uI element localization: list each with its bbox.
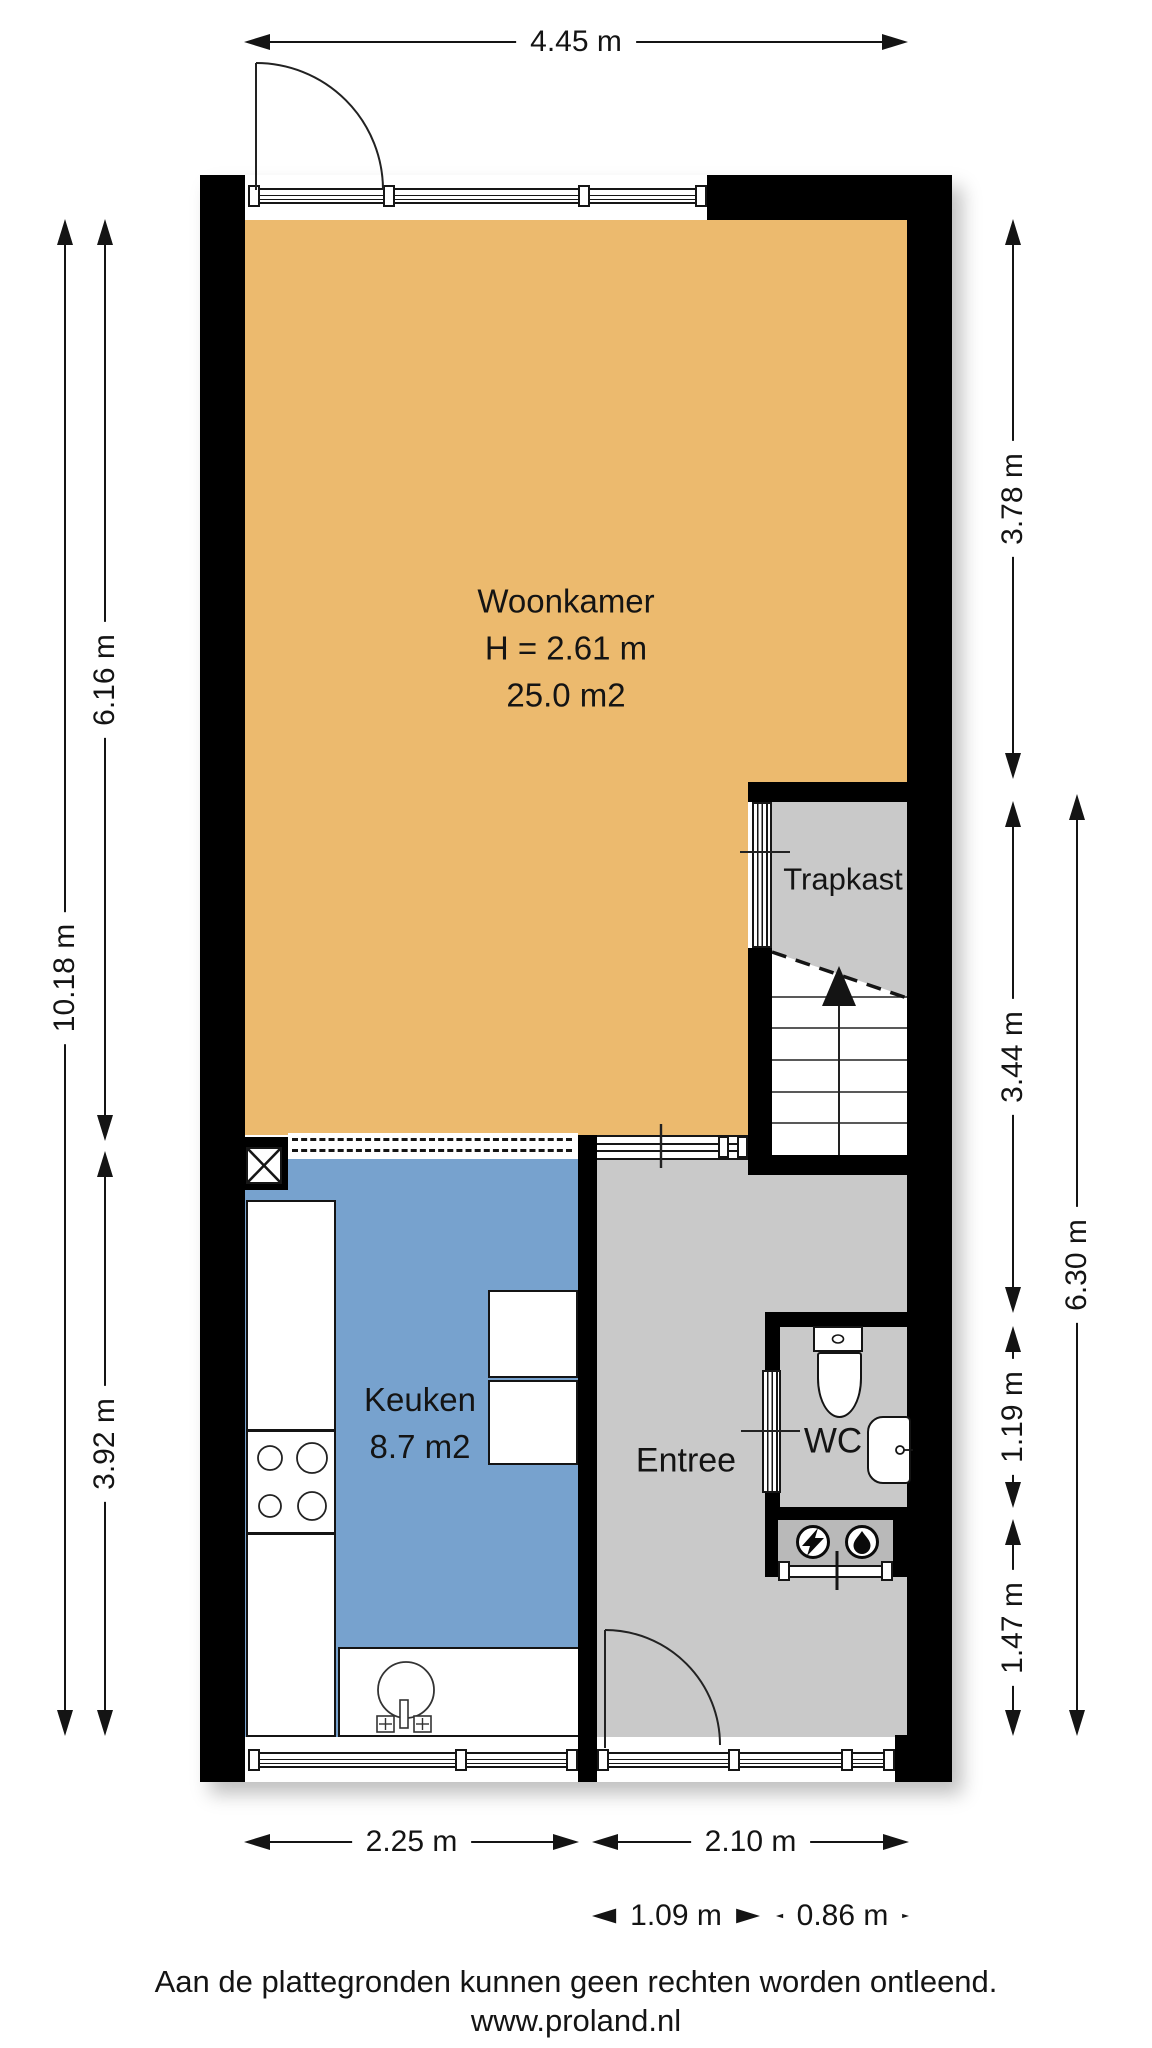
window-mullion bbox=[383, 185, 395, 207]
front-door-top bbox=[256, 63, 383, 190]
meterkast-door bbox=[778, 1565, 893, 1578]
room-woonkamer-floor-lower bbox=[245, 782, 748, 1135]
open-connection-band bbox=[288, 1133, 578, 1159]
website-link: www.proland.nl bbox=[0, 2003, 1152, 2039]
floorplan-page: 4.45 m 10.18 m 6.16 m 3.92 m 3.78 m 3.44… bbox=[0, 0, 1152, 2048]
dim-label: 1.19 m bbox=[995, 1359, 1031, 1475]
wall-bottom-right-corner bbox=[895, 1735, 952, 1782]
open-connection-dashed-line bbox=[292, 1138, 572, 1141]
label-woonkamer: Woonkamer H = 2.61 m 25.0 m2 bbox=[477, 578, 654, 719]
open-connection-dashed-line bbox=[292, 1149, 572, 1152]
meterkast-interior bbox=[778, 1520, 893, 1566]
door-trapkast bbox=[752, 802, 772, 948]
label-keuken: Keuken 8.7 m2 bbox=[364, 1376, 476, 1470]
kitchen-counter-left bbox=[246, 1200, 336, 1737]
window-mullion bbox=[737, 1136, 748, 1158]
dim-label: 6.16 m bbox=[87, 622, 123, 738]
wall-keuken-entree bbox=[578, 1135, 597, 1740]
wall-wc-top bbox=[765, 1312, 907, 1327]
dim-label: 4.45 m bbox=[516, 24, 636, 60]
kitchen-counter-divider bbox=[246, 1532, 336, 1535]
window-mullion bbox=[248, 185, 260, 207]
room-name: Woonkamer bbox=[477, 578, 654, 625]
window-mullion bbox=[597, 1749, 609, 1771]
dim-label: 10.18 m bbox=[47, 911, 83, 1043]
wall-meterkast-left bbox=[765, 1520, 778, 1577]
label-entree: Entree bbox=[636, 1438, 736, 1485]
wall-wc-bottom bbox=[765, 1507, 907, 1520]
dim-label: 2.10 m bbox=[691, 1824, 811, 1860]
kitchen-unit-upper bbox=[488, 1290, 578, 1378]
wall-top-right-section bbox=[707, 175, 912, 220]
window-mullion bbox=[695, 185, 707, 207]
door-wc bbox=[762, 1370, 781, 1493]
toilet-icon bbox=[813, 1326, 863, 1352]
dim-label: 0.86 m bbox=[783, 1898, 903, 1934]
wall-bottom-pier bbox=[578, 1735, 597, 1782]
window-mullion bbox=[566, 1749, 578, 1771]
dim-label: 3.92 m bbox=[87, 1386, 123, 1502]
window-mullion bbox=[883, 1749, 895, 1771]
meterkast-door-jamb bbox=[881, 1561, 893, 1581]
wall-trapkast-top bbox=[748, 782, 907, 802]
label-wc: WC bbox=[804, 1418, 862, 1465]
sink-icon bbox=[867, 1416, 911, 1484]
wall-wc-left-upper bbox=[765, 1312, 780, 1370]
kitchen-counter-divider bbox=[246, 1429, 336, 1432]
wall-left bbox=[200, 175, 245, 1782]
label-trapkast: Trapkast bbox=[783, 856, 902, 903]
meterkast-door-jamb bbox=[778, 1561, 790, 1581]
wall-stairwell-left bbox=[748, 948, 772, 1175]
dim-label: 2.25 m bbox=[352, 1824, 472, 1860]
window-mullion bbox=[248, 1749, 260, 1771]
window-top bbox=[248, 188, 707, 204]
dim-label: 3.78 m bbox=[995, 441, 1031, 557]
window-mullion bbox=[728, 1749, 740, 1771]
dim-label: 1.09 m bbox=[616, 1898, 736, 1934]
wall-right bbox=[907, 175, 952, 1782]
dim-label: 6.30 m bbox=[1059, 1207, 1095, 1323]
room-area: 25.0 m2 bbox=[477, 672, 654, 719]
disclaimer-text: Aan de plattegronden kunnen geen rechten… bbox=[0, 1964, 1152, 2000]
room-area: 8.7 m2 bbox=[364, 1423, 476, 1470]
window-mullion bbox=[841, 1749, 853, 1771]
wall-stairs-bottom bbox=[748, 1155, 907, 1175]
dim-label: 3.44 m bbox=[995, 999, 1031, 1115]
window-mullion bbox=[578, 185, 590, 207]
duct-cross-icon bbox=[246, 1147, 282, 1184]
kitchen-unit-lower bbox=[488, 1380, 578, 1465]
room-ceiling-height: H = 2.61 m bbox=[477, 625, 654, 672]
window-bottom-keuken bbox=[248, 1752, 578, 1768]
kitchen-counter-bottom bbox=[338, 1647, 580, 1737]
room-name: Keuken bbox=[364, 1376, 476, 1423]
dim-label: 1.47 m bbox=[995, 1570, 1031, 1686]
wall-meterkast-right bbox=[893, 1520, 907, 1577]
window-mullion bbox=[718, 1136, 729, 1158]
window-mullion bbox=[455, 1749, 467, 1771]
